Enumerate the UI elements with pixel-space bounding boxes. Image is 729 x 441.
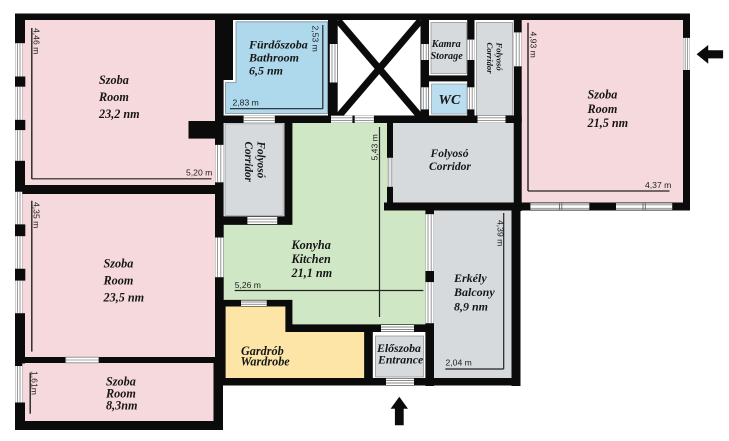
svg-text:5,20 m: 5,20 m (186, 168, 212, 178)
svg-text:2,83 m: 2,83 m (233, 97, 259, 107)
svg-text:Corridor: Corridor (242, 142, 254, 183)
svg-text:Corridor: Corridor (485, 43, 495, 75)
svg-text:Storage: Storage (431, 51, 464, 62)
svg-text:Room: Room (103, 274, 134, 288)
svg-text:Konyha: Konyha (291, 238, 331, 252)
svg-text:Folyosó: Folyosó (429, 147, 468, 160)
svg-text:1,61m: 1,61m (30, 371, 40, 395)
svg-text:4,37 m: 4,37 m (645, 180, 671, 190)
svg-text:Wardrobe: Wardrobe (241, 355, 291, 369)
svg-text:Room: Room (587, 102, 618, 116)
svg-text:Folyosó: Folyosó (255, 141, 267, 179)
svg-text:Room: Room (98, 90, 129, 104)
svg-text:WC: WC (439, 93, 461, 108)
svg-text:Corridor: Corridor (429, 160, 471, 173)
svg-text:Kitchen: Kitchen (291, 252, 331, 266)
svg-text:Entrance: Entrance (377, 353, 423, 367)
svg-text:Szoba: Szoba (588, 88, 618, 102)
svg-text:21,1 nm: 21,1 nm (291, 266, 333, 280)
svg-text:23,2 nm: 23,2 nm (98, 107, 140, 121)
svg-text:4,46 m: 4,46 m (32, 28, 42, 54)
svg-text:Folyosó: Folyosó (495, 42, 505, 72)
svg-text:4,35 m: 4,35 m (32, 202, 42, 228)
svg-text:21,5 nm: 21,5 nm (587, 116, 629, 130)
svg-text:2,04 m: 2,04 m (446, 357, 472, 367)
svg-text:4,93 m: 4,93 m (529, 32, 539, 58)
svg-text:2,53 m: 2,53 m (311, 26, 321, 52)
svg-text:Bathroom: Bathroom (248, 51, 299, 65)
svg-text:5,26 m: 5,26 m (235, 280, 261, 290)
svg-text:Kamra: Kamra (431, 39, 461, 50)
svg-text:Erkély: Erkély (453, 271, 487, 285)
svg-text:8,9 nm: 8,9 nm (454, 299, 488, 313)
svg-text:8,3nm: 8,3nm (106, 399, 138, 413)
svg-text:5,43 m: 5,43 m (370, 134, 380, 160)
svg-text:23,5 nm: 23,5 nm (103, 291, 145, 305)
svg-text:Balcony: Balcony (453, 285, 495, 299)
svg-text:Szoba: Szoba (104, 257, 134, 271)
svg-text:6,5 nm: 6,5 nm (249, 64, 283, 78)
svg-text:4,39 m: 4,39 m (496, 220, 506, 246)
svg-text:Fürdőszoba: Fürdőszoba (248, 38, 308, 52)
svg-text:Szoba: Szoba (99, 73, 129, 87)
